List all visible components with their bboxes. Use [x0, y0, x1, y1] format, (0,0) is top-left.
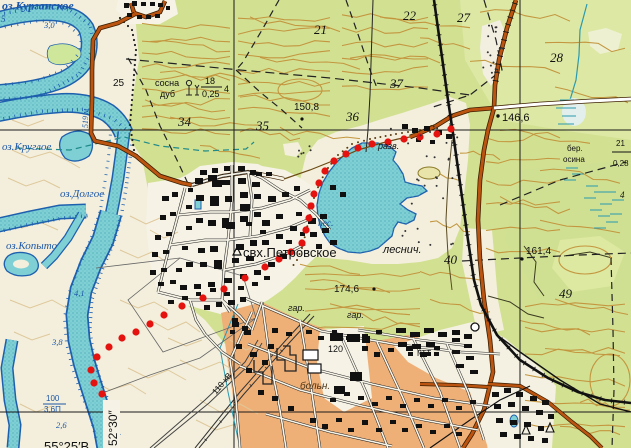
svg-text:4: 4: [620, 190, 625, 200]
svg-text:3,0: 3,0: [43, 20, 55, 30]
svg-text:146,6: 146,6: [502, 112, 530, 124]
svg-text:осина: осина: [563, 155, 585, 164]
svg-text:21: 21: [616, 139, 625, 148]
svg-text:49: 49: [559, 286, 573, 301]
svg-text:гар.: гар.: [288, 303, 305, 313]
svg-text:174,6: 174,6: [334, 284, 359, 295]
svg-text:леснич.: леснич.: [382, 244, 422, 256]
svg-text:ГТТ: ГТТ: [417, 349, 431, 358]
svg-text:27: 27: [457, 10, 471, 25]
svg-text:100: 100: [46, 394, 60, 403]
svg-text:0,25: 0,25: [202, 89, 220, 99]
svg-text:4: 4: [224, 84, 229, 94]
svg-text:разв.: разв.: [377, 141, 399, 151]
svg-text:дуб: дуб: [160, 89, 175, 99]
svg-text:оз.Копыто: оз.Копыто: [6, 240, 58, 252]
svg-text:оз.Курганское: оз.Курганское: [2, 0, 74, 13]
svg-text:40: 40: [444, 252, 458, 267]
svg-text:21: 21: [314, 22, 327, 37]
svg-text:37: 37: [389, 76, 404, 91]
svg-text:35: 35: [255, 118, 270, 133]
svg-text:161,4: 161,4: [526, 246, 551, 257]
svg-text:22: 22: [403, 8, 417, 23]
svg-text:34: 34: [177, 114, 192, 129]
svg-text:150,8: 150,8: [294, 102, 319, 113]
svg-text:120: 120: [328, 344, 343, 354]
svg-text:пес.: пес.: [318, 219, 333, 229]
svg-text:519 м: 519 м: [81, 109, 90, 128]
svg-text:оз.Долгое: оз.Долгое: [60, 188, 104, 200]
svg-text:28: 28: [550, 50, 564, 65]
svg-text:больн.: больн.: [300, 380, 330, 392]
svg-text:18: 18: [205, 76, 215, 86]
svg-text:3,8: 3,8: [51, 337, 63, 347]
svg-text:свх.Петровское: свх.Петровское: [243, 245, 337, 260]
svg-text:гар.: гар.: [347, 310, 364, 320]
svg-text:4,1: 4,1: [74, 288, 85, 298]
svg-text:25: 25: [113, 78, 125, 89]
svg-text:бер.: бер.: [567, 144, 583, 153]
svg-text:5: 5: [1, 14, 6, 24]
svg-text:36: 36: [345, 109, 360, 124]
svg-text:0,28: 0,28: [613, 159, 629, 168]
svg-text:52°30″: 52°30″: [106, 410, 120, 446]
svg-text:сосна: сосна: [155, 78, 179, 88]
svg-text:55°25′В: 55°25′В: [44, 439, 89, 448]
svg-text:3,6П: 3,6П: [44, 405, 61, 414]
svg-text:2,6: 2,6: [56, 420, 67, 430]
svg-text:оз.Круглое: оз.Круглое: [2, 141, 52, 153]
